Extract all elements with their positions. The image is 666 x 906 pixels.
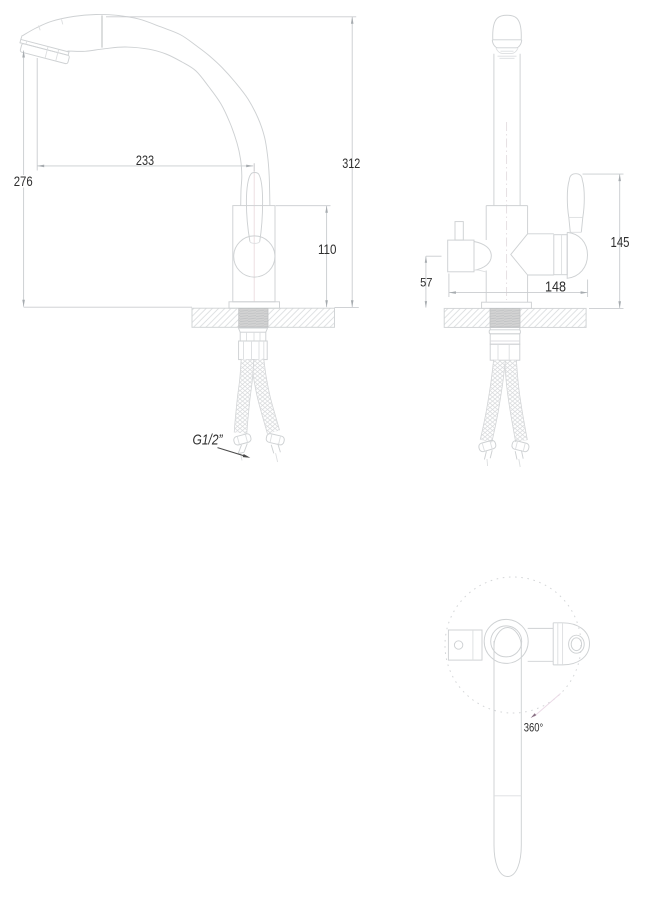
svg-text:145: 145 (611, 235, 630, 251)
svg-text:312: 312 (342, 155, 360, 171)
svg-text:360°: 360° (524, 721, 544, 734)
svg-text:276: 276 (14, 173, 33, 189)
svg-text:110: 110 (318, 241, 337, 257)
svg-text:G1/2”: G1/2” (193, 432, 224, 449)
svg-text:57: 57 (420, 276, 432, 290)
svg-text:148: 148 (545, 280, 566, 296)
svg-text:233: 233 (136, 152, 154, 168)
